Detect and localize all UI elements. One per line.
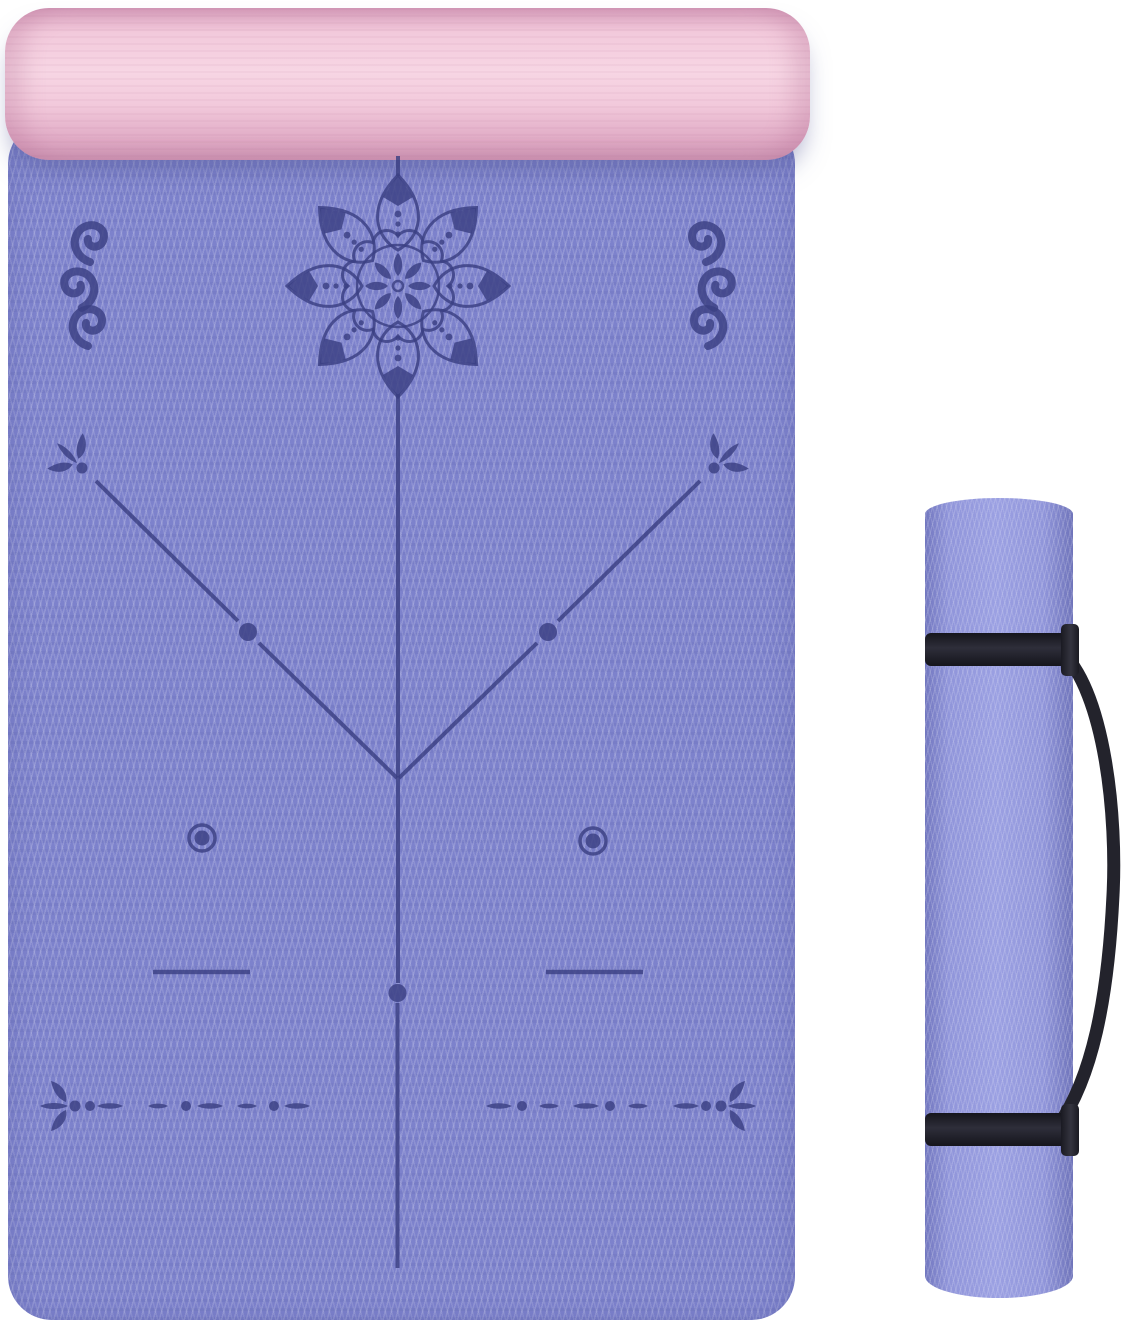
pink-rolled-edge [5,8,810,160]
strap-band-top [925,633,1073,666]
rolled-yoga-mat [925,498,1073,1298]
strap-buckle-tab [1061,1104,1079,1156]
product-image [0,0,1121,1326]
strap-band-bottom [925,1113,1073,1146]
strap-buckle-tab [1061,624,1079,676]
yoga-mat [8,120,795,1320]
